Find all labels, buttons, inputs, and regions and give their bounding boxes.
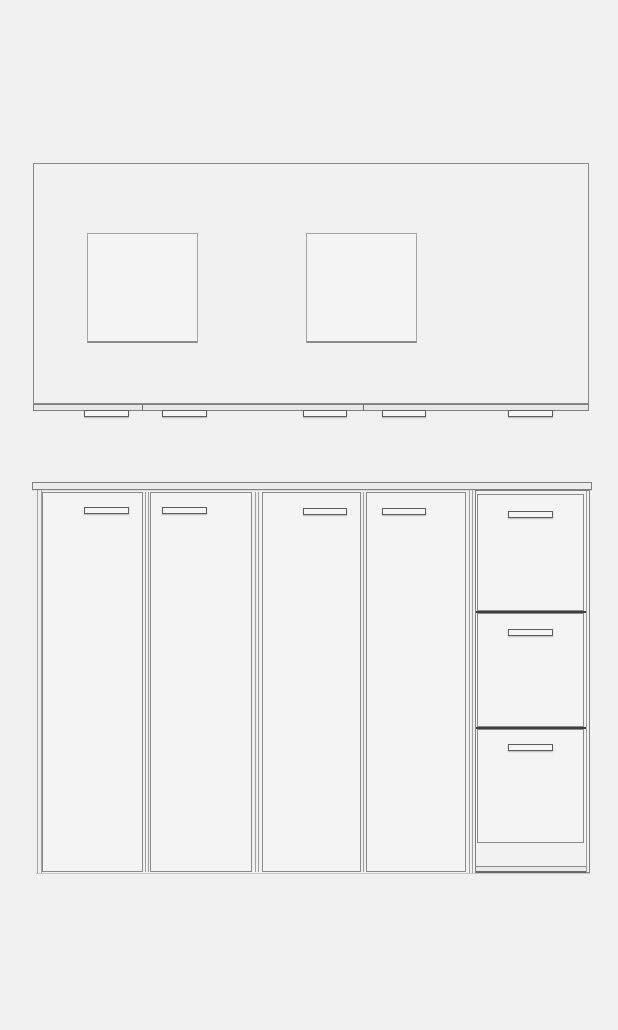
base-shadow-line — [36, 873, 590, 874]
door-handle-3 — [303, 508, 347, 515]
door-panel-3 — [262, 492, 361, 872]
drawer-divider-line-1 — [476, 611, 586, 613]
door-gap-line-2b — [258, 492, 259, 872]
drawer-unit-inner-right-line — [586, 491, 587, 872]
countertop-front-edge — [32, 482, 592, 490]
drawer-handle-2 — [508, 629, 553, 636]
cabinet-technical-drawing — [0, 0, 618, 1030]
drawer-divider-line-2 — [476, 727, 586, 729]
door-gap-line-1a — [145, 492, 146, 872]
drawer-handle-1 — [508, 511, 553, 518]
elevation-view — [0, 0, 618, 1030]
door-panel-4 — [366, 492, 466, 872]
door-gap-line-2a — [255, 492, 256, 872]
drawer-handle-3 — [508, 744, 553, 751]
drawer-gap-line-a — [469, 490, 470, 873]
door-gap-line-3 — [363, 492, 364, 872]
door-handle-2 — [162, 507, 207, 514]
door-gap-line-1b — [148, 492, 149, 872]
left-side-panel-outer-line — [37, 490, 38, 873]
drawer-plinth — [476, 866, 586, 873]
door-handle-4 — [382, 508, 426, 515]
door-handle-1 — [84, 507, 129, 514]
door-panel-2 — [150, 492, 252, 872]
door-panel-1 — [42, 492, 143, 872]
drawer-gap-line-b — [472, 490, 473, 873]
